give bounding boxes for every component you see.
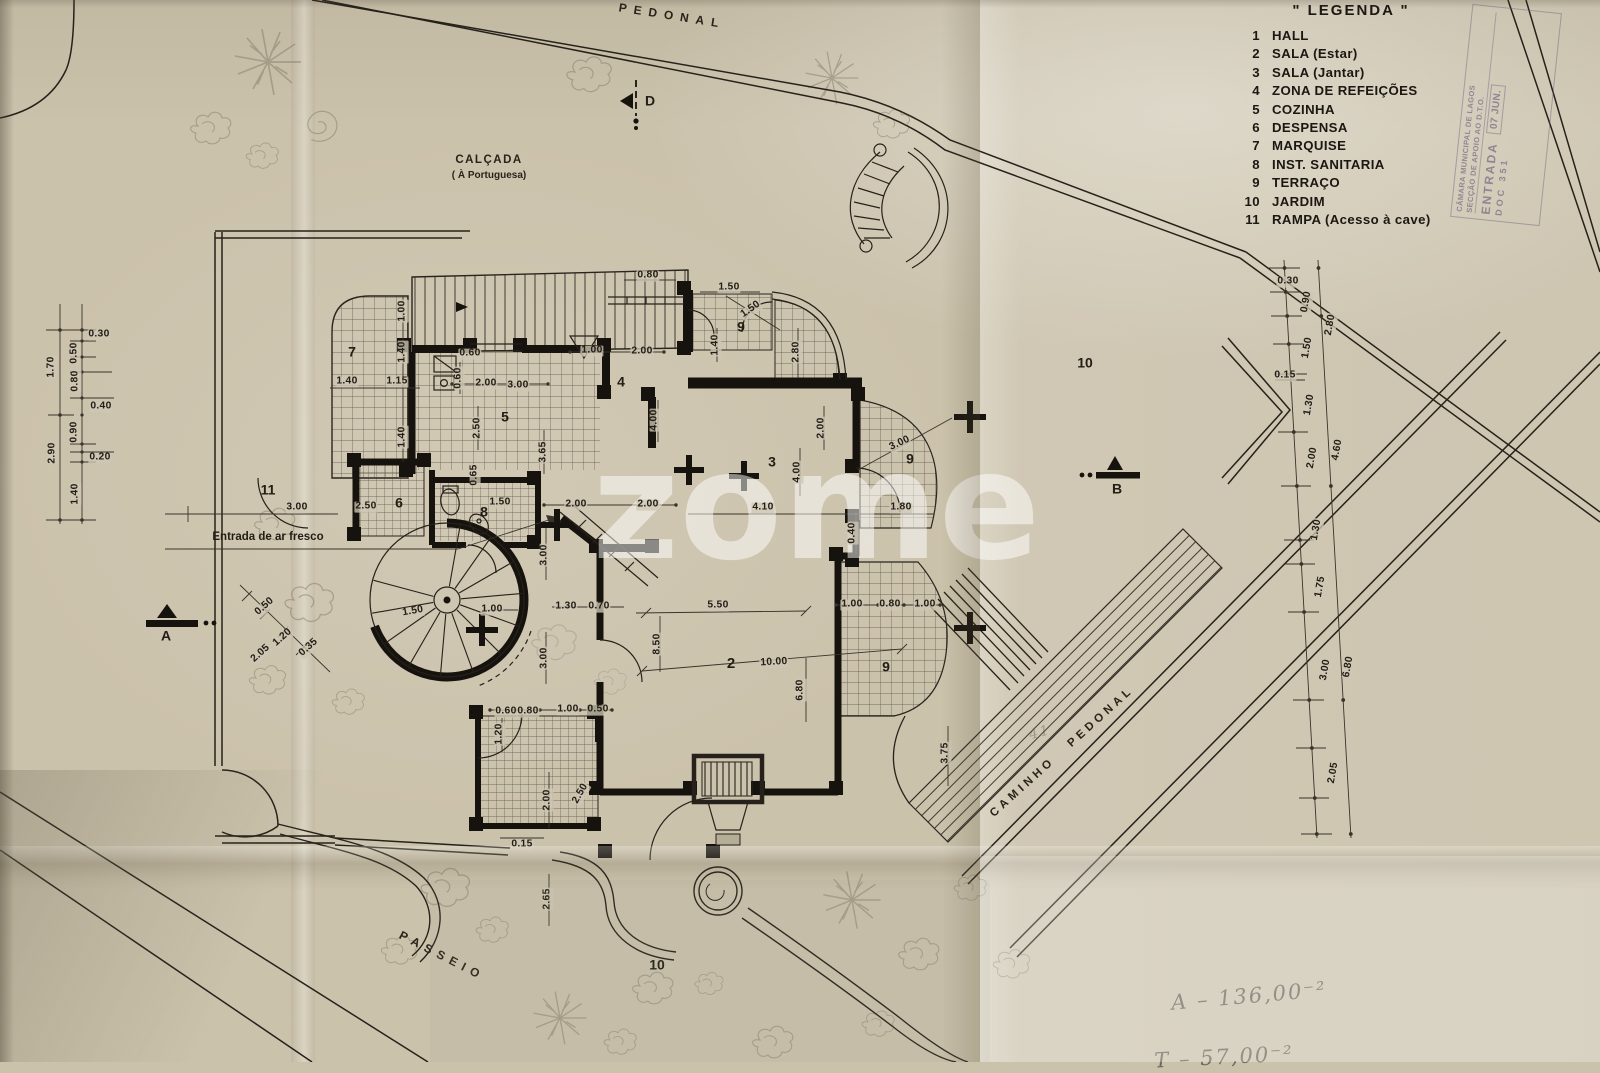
dimension-label: 2.00 <box>630 347 653 358</box>
section-letter: D <box>645 94 655 109</box>
dimension-label: 4.00 <box>793 460 804 483</box>
dimension-label: 2.00 <box>543 788 554 811</box>
room-number: 7 <box>348 345 356 360</box>
dimension-label: 0.20 <box>88 453 111 464</box>
dimension-label: 1.00 <box>840 600 863 611</box>
area-label: CALÇADA <box>455 154 522 166</box>
dimension-label: 2.00 <box>636 500 659 511</box>
dimension-label: 4.00 <box>650 408 661 431</box>
dimension-label: 4.10 <box>751 503 774 514</box>
dimension-label: 3.00 <box>540 543 551 566</box>
area-label: ( À Portuguesa) <box>452 171 526 182</box>
dimension-label: 1.00 <box>398 299 409 322</box>
dimension-label: 2.50 <box>473 416 484 439</box>
dimension-label: 0.50 <box>586 705 609 716</box>
dimension-label: 0.90 <box>1300 290 1315 315</box>
dimension-label: 1.30 <box>1310 518 1325 543</box>
area-label: PEDONAL <box>618 1 726 30</box>
dimension-label: 2.50 <box>571 781 592 807</box>
room-number: 9 <box>882 660 890 675</box>
room-number: 6 <box>395 496 403 511</box>
dimension-label: 2.50 <box>354 502 377 513</box>
room-number: 10 <box>649 958 665 973</box>
room-number: 11 <box>261 483 276 498</box>
dimension-label: 2.00 <box>1306 446 1321 471</box>
dimension-label: 1.00 <box>913 600 936 611</box>
dimension-label: 2.05 <box>249 642 274 666</box>
room-number: 9 <box>737 320 745 335</box>
dimension-label: 1.00 <box>580 346 603 357</box>
area-label: CAMINHO PEDONAL <box>988 684 1136 819</box>
dimension-label: 8.50 <box>653 632 664 655</box>
dimension-label: 1.40 <box>711 333 722 356</box>
dimension-label: 3.65 <box>539 440 550 463</box>
dimension-label: 1.40 <box>398 340 409 363</box>
dimension-label: 1.20 <box>271 626 296 650</box>
dimension-label: 1.40 <box>398 425 409 448</box>
area-label: PASSEIO <box>397 929 487 983</box>
handwritten-note: A – 136,00⁻² <box>1170 978 1327 1014</box>
dimension-label: 1.75 <box>1314 575 1329 600</box>
dimension-label: 2.05 <box>1327 761 1342 786</box>
dimension-label: 6.80 <box>796 678 807 701</box>
dimension-label: 0.30 <box>87 330 110 341</box>
handwritten-note: 41 <box>1028 723 1053 743</box>
room-number: 4 <box>617 375 625 390</box>
room-number: 9 <box>906 452 914 467</box>
dimension-label: 0.80 <box>71 369 82 392</box>
section-letter: A <box>161 629 171 644</box>
dimension-label: 2.65 <box>543 887 554 910</box>
dimension-label: 1.40 <box>71 482 82 505</box>
dimension-label: 1.30 <box>1303 393 1318 418</box>
dimension-label: 10.00 <box>759 657 789 669</box>
dimension-label: 1.80 <box>889 503 912 514</box>
dimension-label: 3.00 <box>540 646 551 669</box>
dimension-label: 0.80 <box>516 707 539 718</box>
dimension-label: 0.80 <box>878 600 901 611</box>
dimension-label: 3.00 <box>506 381 529 392</box>
dimension-label: 2.80 <box>792 340 803 363</box>
room-number: 3 <box>768 455 776 470</box>
dimension-label: 2.00 <box>817 416 828 439</box>
dimension-label: 1.50 <box>401 605 426 620</box>
dimension-label: 4.60 <box>1331 438 1346 463</box>
dimension-label: 0.15 <box>510 840 533 851</box>
dimension-label: 0.80 <box>636 271 659 282</box>
dimension-label: 1.20 <box>495 722 506 745</box>
dimension-label: 3.00 <box>1319 658 1334 683</box>
dimension-label: 3.00 <box>285 503 308 514</box>
room-number: 2 <box>727 656 735 672</box>
dimension-label: 2.80 <box>1324 313 1339 338</box>
dimension-label: 0.70 <box>587 602 610 613</box>
dimension-label: 1.70 <box>47 355 58 378</box>
dimension-label: 1.50 <box>1301 336 1316 361</box>
section-letter: B <box>1112 482 1122 497</box>
dimension-label: 2.90 <box>48 441 59 464</box>
annotation: Entrada de ar fresco <box>212 531 323 543</box>
dimension-label: 0.40 <box>848 521 859 544</box>
dimension-label: 2.00 <box>564 500 587 511</box>
dimension-label: 0.60 <box>458 349 481 360</box>
dimension-label: 1.00 <box>556 705 579 716</box>
labels-layer: PEDONALCALÇADA( À Portuguesa)PASSEIOCAMI… <box>0 0 1600 1062</box>
dimension-label: 1.50 <box>717 283 740 294</box>
dimension-label: 1.40 <box>335 377 358 388</box>
dimension-label: 0.40 <box>89 402 112 413</box>
room-number: 5 <box>501 410 509 425</box>
room-number: 8 <box>480 505 488 520</box>
dimension-label: 6.80 <box>1342 655 1357 680</box>
dimension-label: 0.60 <box>454 366 465 389</box>
dimension-label: 3.75 <box>941 741 952 764</box>
dimension-label: 1.50 <box>738 299 763 321</box>
dimension-label: 0.60 <box>494 707 517 718</box>
dimension-label: 0.65 <box>470 463 481 486</box>
dimension-label: 1.30 <box>554 602 577 613</box>
dimension-label: 5.50 <box>706 601 729 612</box>
room-number: 10 <box>1077 356 1093 371</box>
dimension-label: 0.35 <box>297 636 322 660</box>
dimension-label: 1.50 <box>488 498 511 509</box>
dimension-label: 2.00 <box>474 379 497 390</box>
dimension-label: 1.00 <box>480 605 503 616</box>
handwritten-note: T – 57,00⁻² <box>1154 1042 1294 1071</box>
dimension-label: 0.30 <box>1276 277 1299 288</box>
dimension-label: 0.50 <box>253 595 278 619</box>
dimension-label: 0.15 <box>1273 371 1296 382</box>
dimension-label: 0.90 <box>70 420 81 443</box>
dimension-label: 0.50 <box>70 341 81 364</box>
dimension-label: 1.15 <box>385 377 408 388</box>
